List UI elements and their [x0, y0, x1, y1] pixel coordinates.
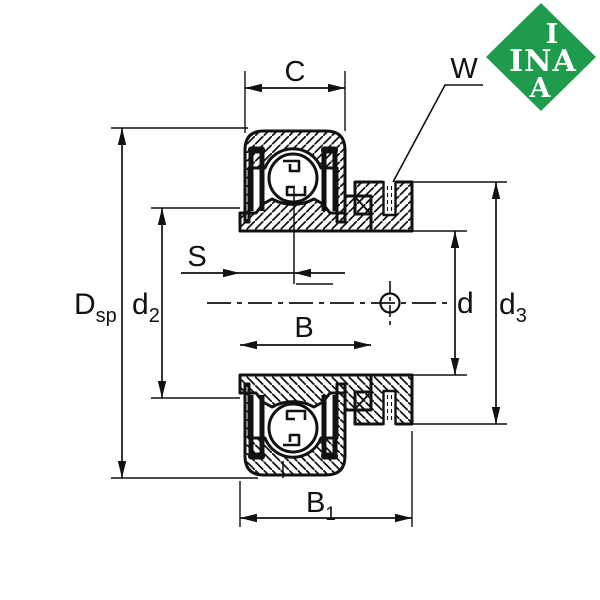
label-Dsp: Dsp	[74, 288, 117, 327]
label-d3: d3	[499, 288, 527, 327]
ina-logo: I INA A	[486, 3, 596, 111]
label-W: W	[450, 53, 478, 85]
dim-C: C	[245, 56, 345, 133]
label-B: B	[294, 312, 313, 344]
w-groove	[384, 181, 396, 216]
label-S: S	[187, 241, 206, 273]
bearing-dimension-drawing: C W S B B1 Dsp	[0, 0, 600, 600]
logo-text-a: A	[529, 73, 552, 104]
label-C: C	[285, 56, 306, 88]
bearing-bottom-half	[240, 375, 412, 475]
dim-B: B	[240, 312, 371, 349]
dim-W: W	[393, 53, 483, 182]
label-B1: B1	[306, 487, 336, 525]
label-d: d	[457, 287, 474, 320]
dim-S: S	[181, 241, 345, 277]
bearing-top-half	[240, 131, 412, 231]
bearing-dimension-drawing-page: C W S B B1 Dsp	[0, 0, 600, 600]
label-d2: d2	[132, 288, 160, 327]
